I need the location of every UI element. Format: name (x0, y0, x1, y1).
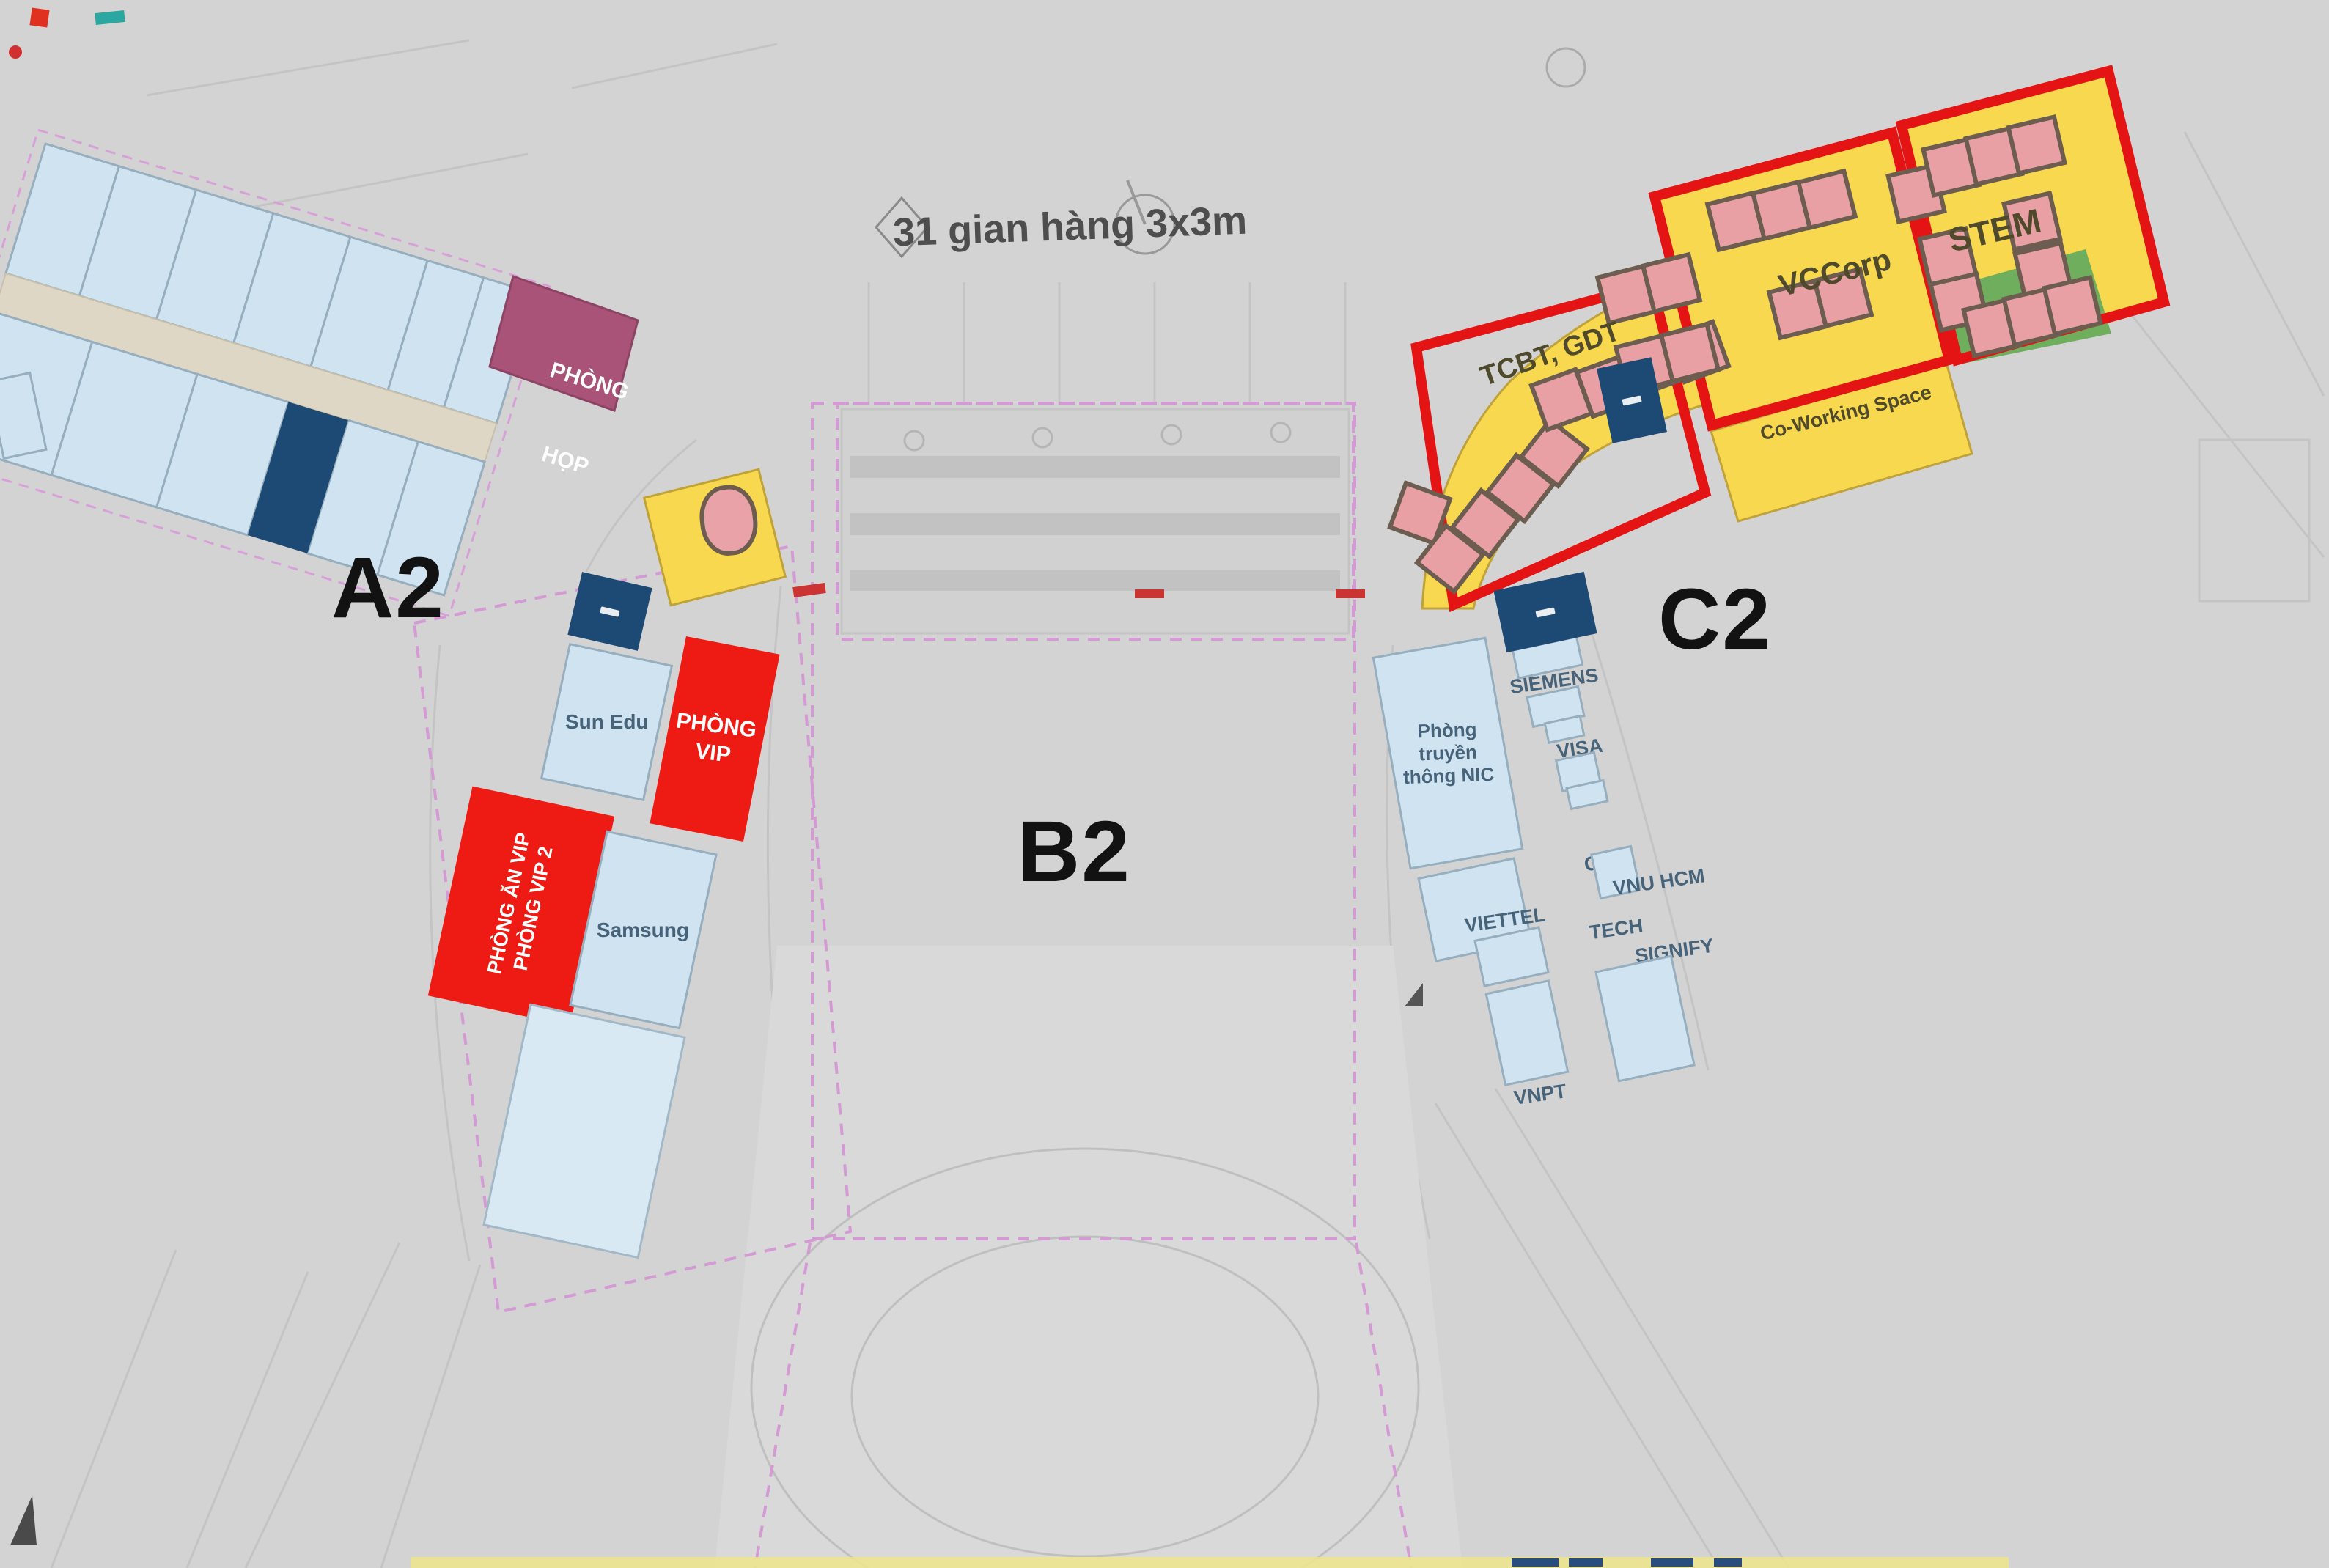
door-mark (1622, 395, 1641, 405)
door-mark (1535, 607, 1555, 617)
samsung-label: Samsung (597, 919, 689, 942)
a2-top-strip (0, 130, 550, 616)
b2-lower-hall (715, 946, 1462, 1568)
floor-plan-canvas: Sun Edu PHÒNG VIP PHÒNG ĂN VIP PHÒNG VIP… (0, 0, 2329, 1568)
stage-band (842, 409, 1349, 633)
wing-label-c2: C2 (1658, 570, 1772, 670)
nic-media-line1: Phòng (1401, 718, 1493, 743)
wing-label-a2: A2 (331, 539, 445, 638)
phong-hop-line1: PHÒNG (533, 353, 646, 411)
bottom-edge-strip (411, 1557, 2009, 1568)
phong-hop-line2: HỌP (509, 431, 622, 490)
nic-media-line3: thông NIC (1402, 763, 1494, 789)
wing-label-b2: B2 (1018, 803, 1131, 902)
round-booth (696, 482, 761, 559)
door-mark (600, 606, 619, 617)
sun-edu-label: Sun Edu (565, 710, 649, 734)
cmc-label-line2: TECH (1578, 913, 1654, 946)
nic-media-line2: truyền (1402, 740, 1493, 766)
